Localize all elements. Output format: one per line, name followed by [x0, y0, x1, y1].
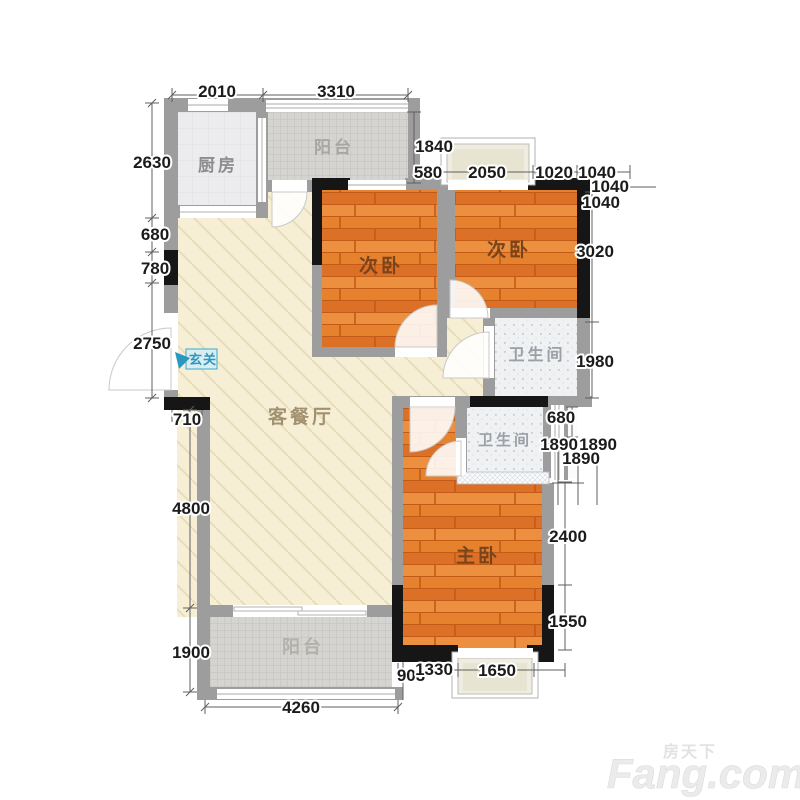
living-balcony-sliding-door [233, 605, 367, 617]
room-label-balcony-bottom: 阳台 [282, 636, 324, 657]
balcony-top-window [266, 100, 408, 112]
room-label-kitchen: 厨房 [198, 155, 238, 175]
master-door-opening [410, 397, 455, 408]
dim-710: 710 [173, 410, 201, 429]
floor-plan: 2010 3310 2630 680 780 2750 710 4800 190… [0, 0, 800, 800]
dim-1550: 1550 [549, 612, 587, 631]
dim-3020: 3020 [576, 242, 614, 261]
dim-1040-c: 1040 [582, 193, 620, 212]
dim-3310: 3310 [317, 82, 355, 101]
dim-2050: 2050 [468, 163, 506, 182]
dim-1650: 1650 [478, 661, 516, 680]
room-label-bedroom-right: 次卧 [487, 238, 531, 261]
dim-780: 780 [141, 259, 169, 278]
balcony-door-opening [272, 180, 307, 192]
dim-1840: 1840 [415, 137, 453, 156]
dim-1980: 1980 [576, 352, 614, 371]
dim-580: 580 [414, 163, 442, 182]
dim-2630: 2630 [133, 153, 171, 172]
room-label-bath-lower: 卫生间 [478, 431, 532, 449]
room-label-bedroom-left: 次卧 [359, 254, 403, 277]
room-label-balcony-top: 阳台 [314, 137, 354, 157]
dim-680-left: 680 [141, 225, 169, 244]
dim-4800: 4800 [172, 499, 210, 518]
dim-2750: 2750 [133, 334, 171, 353]
floor-plan-page: 2010 3310 2630 680 780 2750 710 4800 190… [0, 0, 800, 800]
dim-1890-c: 1890 [562, 449, 600, 468]
fang-logo-en: Fang.com [607, 750, 800, 797]
room-label-entry: 玄关 [189, 352, 217, 367]
fang-watermark: 房天下 Fang.com [607, 742, 800, 797]
dim-1900: 1900 [172, 643, 210, 662]
dim-1020: 1020 [535, 163, 573, 182]
bedroom-left-window [348, 180, 406, 190]
dim-2010: 2010 [198, 82, 236, 101]
dim-680-shaft: 680 [547, 408, 575, 427]
bath-lower-frosted-window [457, 472, 549, 484]
room-label-master: 主卧 [456, 545, 500, 567]
room-label-living: 客餐厅 [268, 405, 334, 428]
dim-4260: 4260 [282, 698, 320, 717]
dim-1330: 1330 [415, 660, 453, 679]
room-label-bath-upper: 卫生间 [508, 345, 565, 364]
bedroom-left-door-opening [395, 347, 437, 357]
dim-2400: 2400 [549, 527, 587, 546]
